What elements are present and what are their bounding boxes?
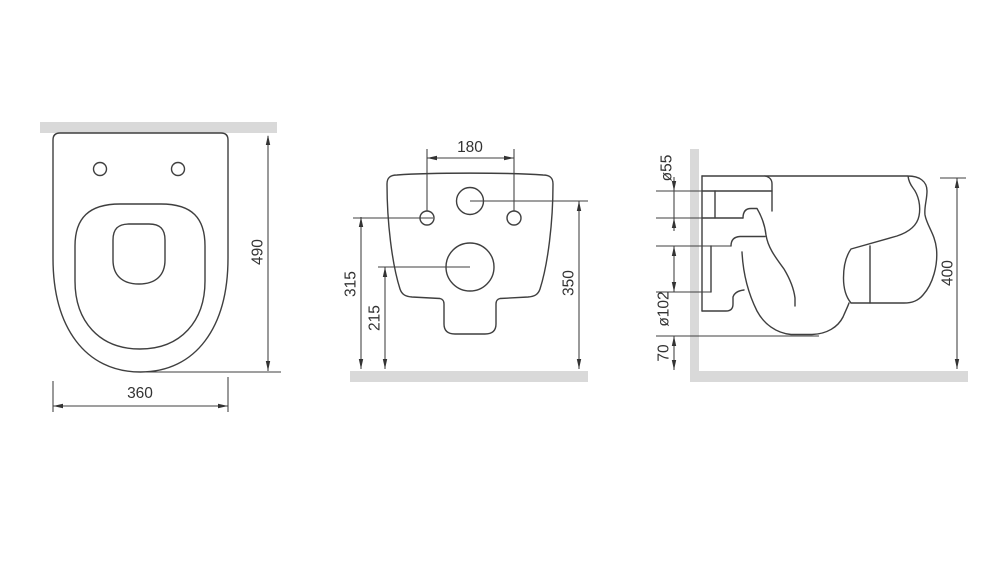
dimension-bolt-height-315: 315 — [342, 217, 363, 369]
dimension-width-360: 360 — [53, 377, 228, 412]
arrowhead-down-icon — [672, 282, 676, 292]
seat-opening-contour — [75, 204, 205, 349]
arrowhead-up-icon — [672, 336, 676, 346]
dimension-label-inlet-diameter: ø55 — [658, 155, 675, 182]
arrowhead-down-icon — [955, 359, 959, 369]
arrowhead-down-icon — [672, 360, 676, 370]
dimension-outlet-height-215: 215 — [366, 267, 387, 369]
dimension-clearance-70: 70 — [655, 336, 819, 370]
mounting-hole-right — [507, 211, 521, 225]
dimension-depth-490: 490 — [146, 135, 281, 372]
arrowhead-down-icon — [359, 359, 363, 369]
arrowhead-down-icon — [383, 359, 387, 369]
dimension-inlet-height-350: 350 — [560, 201, 581, 369]
dimension-label-width: 360 — [127, 385, 153, 402]
dimension-label-outlet-diameter: ø102 — [655, 291, 672, 326]
arrowhead-up-icon — [266, 135, 270, 145]
dimension-label-inlet-height: 350 — [560, 270, 577, 296]
arrowhead-up-icon — [672, 218, 676, 228]
seat-hinge-hole-right — [172, 163, 185, 176]
trap-contour — [742, 252, 849, 335]
seat-hinge-hole-left — [94, 163, 107, 176]
top-view: 490 360 — [40, 122, 281, 412]
dimension-height-400: 400 — [939, 178, 966, 369]
arrowhead-up-icon — [955, 178, 959, 188]
dimension-label-height: 400 — [939, 260, 956, 286]
arrowhead-down-icon — [266, 361, 270, 371]
arrowhead-left-icon — [53, 404, 63, 408]
technical-drawing-page: 490 360 180 — [0, 0, 1000, 572]
arrowhead-up-icon — [577, 201, 581, 211]
dimension-label-outlet-height: 215 — [366, 305, 383, 331]
dimension-bolt-spacing-180: 180 — [427, 139, 514, 211]
arrowhead-down-icon — [672, 181, 676, 191]
bowl-inner-contour — [113, 224, 165, 284]
arrowhead-right-icon — [504, 156, 514, 160]
side-section-view: ø55 ø102 70 400 — [655, 149, 968, 382]
wall-surface — [690, 149, 699, 382]
floor-surface — [350, 371, 588, 382]
arrowhead-down-icon — [577, 359, 581, 369]
arrowhead-up-icon — [672, 246, 676, 256]
outlet-step-contour — [731, 237, 765, 247]
dimension-label-depth: 490 — [249, 239, 266, 265]
wall-surface — [40, 122, 277, 133]
rear-view: 180 315 215 350 — [342, 139, 588, 382]
dimension-label-bolt-spacing: 180 — [457, 139, 483, 156]
arrowhead-right-icon — [218, 404, 228, 408]
lower-back-step-contour — [702, 290, 744, 311]
toilet-outer-contour — [53, 133, 228, 372]
top-seam-line — [765, 176, 772, 211]
dimension-label-bolt-height: 315 — [342, 271, 359, 297]
floor-surface — [690, 371, 968, 382]
arrowhead-up-icon — [383, 267, 387, 277]
dimension-label-clearance: 70 — [655, 344, 672, 362]
arrowhead-left-icon — [427, 156, 437, 160]
toilet-dimension-drawing: 490 360 180 — [0, 0, 1000, 572]
body-profile-contour — [702, 176, 937, 303]
body-contour — [387, 173, 553, 334]
flush-channel-contour — [743, 209, 795, 307]
